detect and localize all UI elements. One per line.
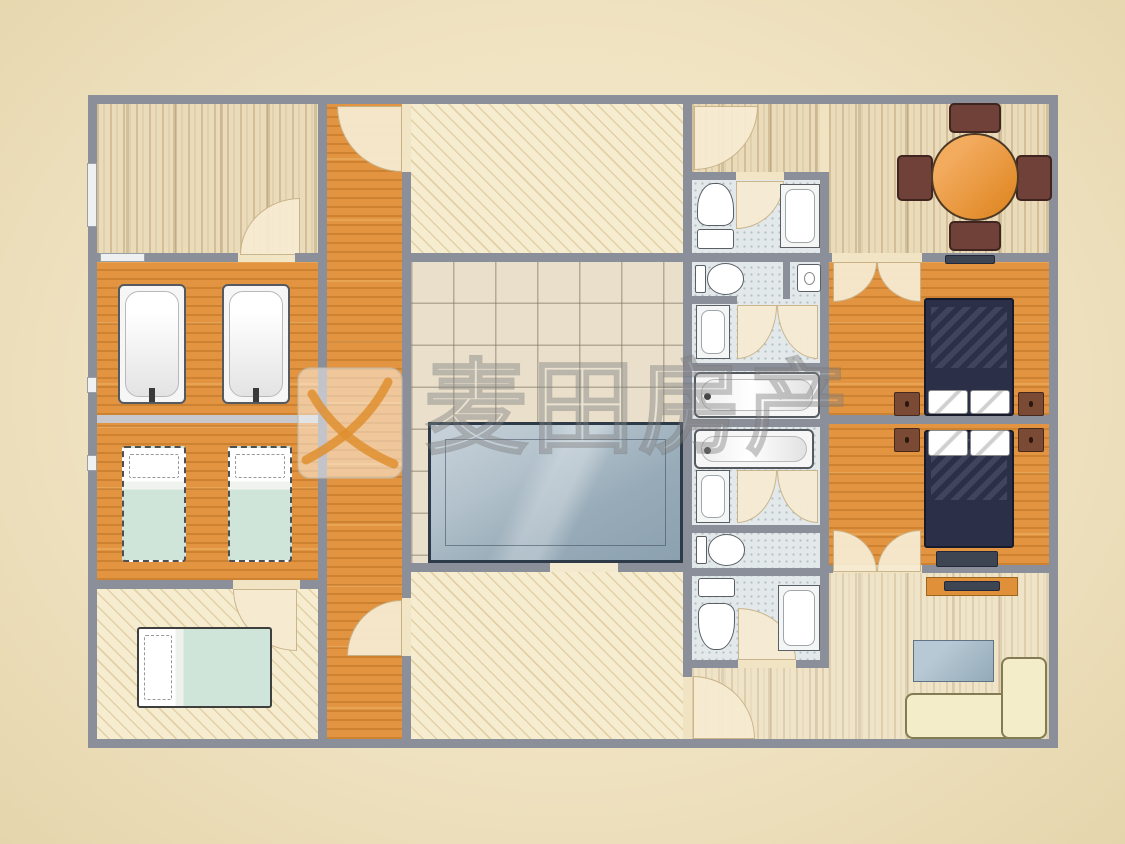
coffee-table [913, 640, 994, 682]
wall-center-right [683, 104, 692, 677]
door-opening-poolroom [550, 563, 618, 572]
faucet-1 [149, 388, 155, 402]
wall-bath-h6 [692, 525, 829, 533]
window-bedroom1 [945, 255, 995, 264]
shower-bath5 [696, 470, 730, 523]
wall-topright-bottom-a [692, 253, 832, 262]
wall-poolroom-bottom-a [402, 563, 550, 572]
wall-topcenter-bottom [402, 253, 692, 262]
wall-bath-h3 [692, 296, 737, 304]
tv [944, 581, 1000, 591]
nightstand-2a [894, 428, 920, 452]
dining-chair-south [949, 221, 1001, 251]
window-left-1 [87, 163, 97, 227]
shower-bath7 [778, 585, 820, 651]
swimming-pool [428, 422, 683, 563]
pillow-2b [970, 430, 1010, 456]
bathtub-2 [222, 284, 290, 404]
wall-bottomleft-top-a [88, 580, 233, 589]
wall-bath-right [820, 172, 829, 663]
top-center-room-floor [411, 104, 683, 253]
window-topleft-bottom [100, 253, 145, 262]
pillow-1b [970, 390, 1010, 414]
nightstand-1b [1018, 392, 1044, 416]
wall-topleft-bottom-c [295, 253, 327, 262]
bottom-center-room-floor [411, 572, 683, 739]
wall-poolroom-bottom-b [618, 563, 692, 572]
bathtub-horizontal-2 [694, 429, 814, 469]
toilet-bath1 [697, 183, 734, 249]
floorplan-page: 麦田房产 [0, 0, 1125, 844]
window-left-2 [87, 377, 97, 393]
wall-bath-bottom-a [683, 660, 738, 668]
pillow-1a [928, 390, 968, 414]
shower-bath3 [696, 305, 730, 359]
bathtub-1 [118, 284, 186, 404]
divider-tub-bedroom [97, 415, 318, 423]
dining-chair-east [1016, 155, 1052, 201]
dining-chair-west [897, 155, 933, 201]
toilet-bath2 [695, 262, 745, 296]
wall-bedroom-divider [829, 415, 1058, 424]
wall-bottomleft-top-b [300, 580, 327, 589]
wall-bath1-top-a [692, 172, 736, 180]
wall-bath1-top-b [784, 172, 829, 180]
shower-bath1 [780, 184, 820, 248]
double-bed-bottomleft [137, 627, 272, 708]
toilet-bath6 [696, 533, 746, 567]
wall-bath-h5 [692, 419, 829, 427]
wall-bath-h4 [692, 363, 829, 371]
wall-corridor-right-upper [402, 172, 411, 598]
wall-topleft-bottom-a [88, 253, 100, 262]
sofa-corner [1001, 657, 1047, 739]
wall-corridor-right-lower [402, 656, 411, 739]
faucet-2 [253, 388, 259, 402]
wall-left-rooms [318, 104, 327, 739]
sink-bath2 [797, 264, 821, 292]
single-bed-2 [228, 446, 292, 562]
wall-bath-h7 [692, 568, 829, 576]
pillow-2a [928, 430, 968, 456]
single-bed-1 [122, 446, 186, 562]
toilet-bath7 [698, 578, 735, 650]
dining-table [931, 133, 1019, 221]
wall-topleft-bottom-b [145, 253, 238, 262]
wall-bath-bottom-b [796, 660, 829, 668]
window-left-3 [87, 455, 97, 471]
nightstand-1a [894, 392, 920, 416]
dresser-bedroom2 [936, 551, 998, 567]
outer-wall-bottom [88, 739, 1058, 748]
wall-bath2-divider [783, 255, 790, 299]
outer-wall-top [88, 95, 1058, 104]
wall-bedroom2-bottom-a [829, 565, 833, 573]
nightstand-2b [1018, 428, 1044, 452]
dining-chair-north [949, 103, 1001, 133]
bathtub-horizontal-1 [694, 372, 820, 418]
